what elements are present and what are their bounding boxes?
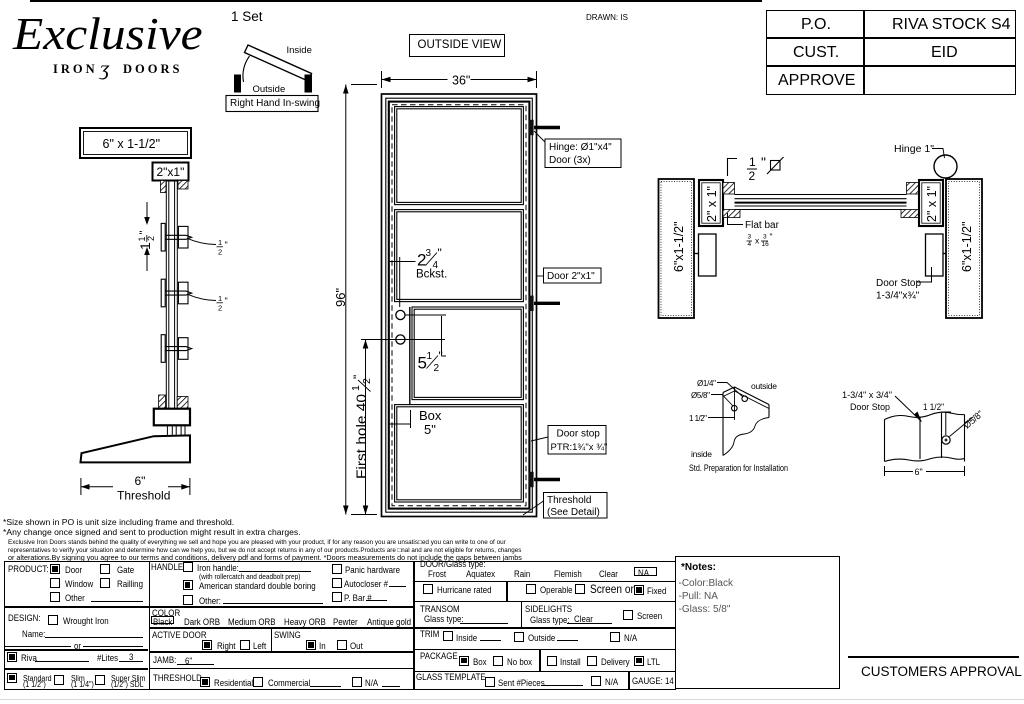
- svg-text:16: 16: [762, 241, 770, 248]
- svg-text:": ": [225, 296, 228, 306]
- svg-text:First hole 40: First hole 40: [353, 394, 369, 479]
- svg-text:1 1/2": 1 1/2": [923, 402, 944, 413]
- svg-text:Ø5/8": Ø5/8": [962, 409, 986, 432]
- svg-text:1 1/2": 1 1/2": [689, 414, 707, 423]
- svg-text:6": 6": [915, 467, 923, 477]
- svg-text:Bckst.: Bckst.: [416, 269, 447, 281]
- svg-text:Door Stop: Door Stop: [850, 402, 890, 413]
- svg-text:Door Stop: Door Stop: [876, 278, 921, 289]
- svg-text:Hinge 1": Hinge 1": [894, 143, 934, 155]
- svg-text:5": 5": [424, 422, 436, 437]
- svg-text:6"x1-1/2": 6"x1-1/2": [960, 221, 974, 272]
- svg-text:Door stop: Door stop: [557, 429, 601, 440]
- svg-text:": ": [761, 154, 766, 170]
- svg-text:": ": [770, 232, 773, 242]
- svg-text:6": 6": [135, 474, 146, 488]
- svg-text:6" x 1-1/2": 6" x 1-1/2": [103, 137, 161, 151]
- svg-text:PTR:1¾"x ¾": PTR:1¾"x ¾": [551, 442, 608, 453]
- svg-text:Std. Preparation for Installat: Std. Preparation for Installation: [689, 463, 788, 474]
- svg-text:": ": [438, 246, 442, 260]
- svg-text:1: 1: [218, 238, 222, 247]
- svg-text:96": 96": [333, 288, 348, 307]
- svg-text:Hinge: Ø1"x4": Hinge: Ø1"x4": [549, 142, 612, 153]
- svg-text:2" x 1": 2" x 1": [925, 186, 939, 222]
- svg-text:2"x1": 2"x1": [157, 165, 185, 179]
- svg-text:1: 1: [427, 351, 433, 362]
- svg-text:3: 3: [748, 234, 752, 241]
- svg-text:(See Detail): (See Detail): [547, 507, 600, 518]
- svg-text:": ": [138, 231, 150, 235]
- svg-text:1-3/4"x¾": 1-3/4"x¾": [876, 291, 920, 302]
- svg-text:2: 2: [434, 363, 440, 374]
- svg-text:2: 2: [218, 248, 222, 257]
- svg-text:Box: Box: [419, 408, 442, 423]
- svg-text:1: 1: [749, 155, 756, 169]
- svg-text:Door (3x): Door (3x): [549, 155, 591, 166]
- svg-text:2" x 1": 2" x 1": [705, 186, 719, 222]
- svg-text:": ": [439, 349, 443, 363]
- svg-text:1: 1: [137, 242, 153, 250]
- svg-text:Threshold: Threshold: [547, 495, 591, 506]
- svg-text:1: 1: [218, 294, 222, 303]
- svg-text:Door 2"x1": Door 2"x1": [547, 271, 595, 282]
- svg-text:x: x: [755, 236, 760, 246]
- svg-text:1: 1: [350, 385, 362, 391]
- svg-text:": ": [351, 375, 365, 379]
- svg-text:inside: inside: [691, 449, 712, 459]
- svg-text:Flat bar: Flat bar: [745, 220, 780, 231]
- svg-text:Threshold: Threshold: [117, 489, 170, 503]
- svg-text:2: 2: [146, 236, 156, 241]
- svg-text:4: 4: [748, 241, 752, 248]
- svg-text:": ": [225, 240, 228, 250]
- svg-text:1-3/4" x 3/4": 1-3/4" x 3/4": [842, 390, 892, 401]
- svg-text:2: 2: [749, 169, 756, 183]
- svg-text:2: 2: [218, 304, 222, 313]
- svg-text:3: 3: [763, 234, 767, 241]
- svg-text:Ø5/8": Ø5/8": [691, 391, 710, 400]
- svg-text:Ø1/4": Ø1/4": [697, 379, 716, 388]
- svg-text:3: 3: [426, 248, 432, 259]
- svg-text:6"x1-1/2": 6"x1-1/2": [672, 221, 686, 272]
- svg-text:outside: outside: [751, 381, 777, 391]
- svg-text:36": 36": [452, 74, 470, 88]
